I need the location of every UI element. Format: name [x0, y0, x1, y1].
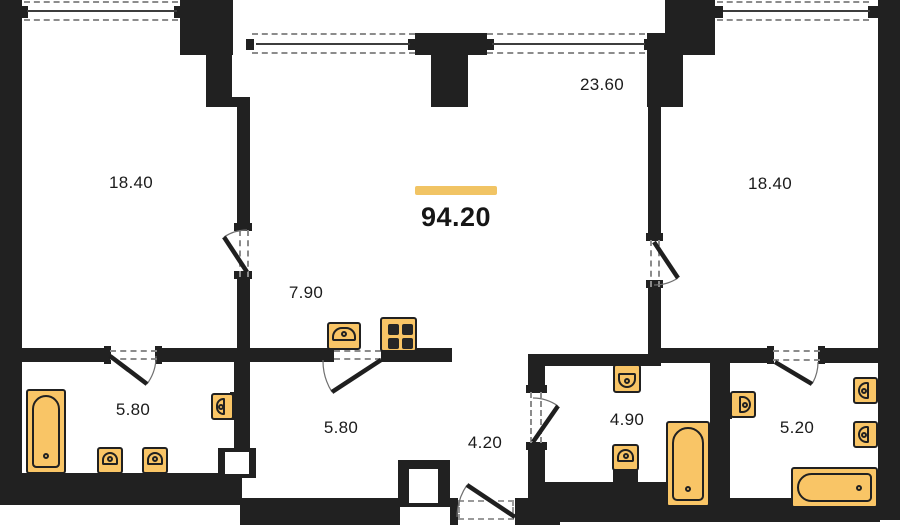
burner	[402, 338, 413, 349]
bathtub-icon	[26, 389, 66, 474]
sink-icon	[142, 447, 168, 474]
door-left-room	[224, 230, 247, 272]
sink-icon	[613, 364, 641, 393]
wall	[648, 107, 661, 240]
wall	[526, 442, 547, 450]
window-dash-line	[487, 52, 645, 54]
fixture-bowl	[32, 395, 60, 468]
window-dash-line	[110, 358, 157, 360]
wall	[644, 39, 652, 50]
wall-niche	[225, 452, 249, 474]
drain-dot	[152, 456, 158, 462]
entrance-threshold	[458, 500, 514, 520]
window-glass-line	[27, 10, 177, 12]
area-label-bath-right: 5.20	[780, 418, 814, 438]
window-dash-line	[24, 1, 178, 3]
fixture-bowl	[617, 449, 634, 462]
wall	[180, 0, 233, 55]
door-storage	[323, 360, 381, 392]
fixture-bowl	[672, 427, 704, 501]
toilet-icon	[612, 444, 639, 471]
drain-dot	[742, 402, 748, 408]
wall	[878, 0, 900, 520]
window-dash-line	[773, 350, 820, 352]
wall	[431, 55, 468, 107]
kitchen-sink-icon	[327, 322, 361, 350]
window-glass-line	[723, 10, 870, 12]
fixture-bowl	[739, 396, 751, 413]
wall	[174, 6, 184, 18]
drain-dot	[43, 453, 49, 459]
window-dash-line	[658, 240, 660, 287]
window-dash-line	[334, 358, 381, 360]
sink-icon	[730, 391, 756, 418]
wall	[104, 346, 111, 364]
window-dash-line	[717, 19, 869, 21]
bathtub-icon	[666, 421, 710, 507]
wall	[237, 277, 250, 348]
bathtub-icon	[791, 467, 878, 508]
wall	[155, 346, 162, 364]
wall	[237, 103, 250, 230]
window-dash-line	[252, 52, 415, 54]
drain-dot	[623, 453, 629, 459]
fixture-bowl	[147, 452, 163, 465]
wall	[450, 498, 458, 525]
wall	[647, 33, 683, 107]
area-label-storage: 5.80	[324, 418, 358, 438]
window-glass-line	[256, 43, 410, 45]
door-bath-mid	[533, 398, 558, 442]
drain-dot	[685, 486, 691, 492]
wall	[246, 39, 254, 50]
fixture-bowl	[858, 426, 869, 443]
sink-icon	[211, 393, 234, 420]
drain-dot	[218, 404, 224, 410]
drain-dot	[107, 456, 113, 462]
wall	[234, 223, 252, 231]
burner	[388, 338, 399, 349]
window-dash-line	[487, 33, 645, 35]
fixture-bowl	[216, 398, 225, 415]
door-bath-right	[775, 362, 818, 384]
area-label-kitchen: 7.90	[289, 283, 323, 303]
burner	[388, 324, 399, 335]
area-label-room-right: 18.40	[748, 174, 792, 194]
wall	[820, 348, 878, 363]
wall	[710, 348, 730, 522]
drain-dot	[861, 388, 867, 394]
drain-dot	[861, 432, 867, 438]
wall	[0, 348, 110, 362]
area-label-room-left: 18.40	[109, 173, 153, 193]
wall	[613, 470, 638, 484]
window-dash-line	[717, 1, 869, 3]
window-dash-line	[110, 350, 157, 352]
fixture-bowl	[618, 373, 636, 388]
sink-icon	[853, 377, 878, 404]
wall	[0, 473, 242, 505]
area-label-living: 23.60	[580, 75, 624, 95]
stove-icon	[380, 317, 417, 352]
window-dash-line	[334, 350, 381, 352]
window-dash-line	[239, 230, 241, 277]
fixture-bowl	[858, 382, 869, 399]
wall	[240, 498, 400, 525]
wall-niche	[409, 469, 438, 503]
wall	[0, 0, 22, 505]
drain-dot	[341, 331, 347, 337]
wall	[415, 33, 487, 55]
total-area-accent-bar	[415, 186, 497, 195]
window-dash-line	[252, 33, 415, 35]
window-dash-line	[247, 230, 249, 277]
wall	[206, 55, 232, 102]
fixture-bowl	[102, 452, 118, 465]
wall	[234, 271, 252, 279]
wall	[528, 443, 545, 503]
fixture-bowl	[332, 327, 356, 341]
burner	[402, 324, 413, 335]
window-dash-line	[540, 392, 542, 443]
wall	[18, 6, 28, 18]
window-dash-line	[530, 392, 532, 443]
drain-dot	[624, 378, 630, 384]
fixture-bowl	[797, 473, 872, 502]
area-label-hall: 4.20	[468, 433, 502, 453]
window-dash-line	[650, 240, 652, 287]
floor-plan: 94.20 18.402	[0, 0, 900, 525]
wall	[868, 6, 878, 18]
sink-icon	[853, 421, 878, 448]
sink-icon	[97, 447, 123, 474]
wall	[713, 6, 723, 18]
door-bath-left	[110, 356, 156, 384]
area-label-bath-left: 5.80	[116, 400, 150, 420]
window-glass-line	[492, 43, 645, 45]
window-dash-line	[773, 359, 820, 361]
wall	[767, 346, 774, 364]
window-dash-line	[24, 19, 178, 21]
total-area: 94.20	[412, 186, 500, 233]
area-label-bath-mid: 4.90	[610, 410, 644, 430]
drain-dot	[856, 485, 862, 491]
wall	[818, 346, 825, 364]
total-area-value: 94.20	[412, 202, 500, 233]
wall	[646, 280, 663, 288]
wall	[646, 233, 663, 241]
